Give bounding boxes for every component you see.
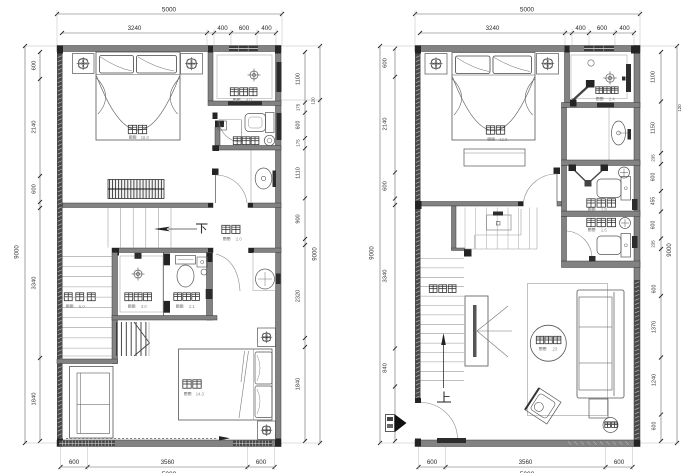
svg-text:600: 600 (69, 459, 80, 466)
svg-text:3560: 3560 (519, 459, 533, 466)
svg-text:400: 400 (217, 25, 228, 32)
svg-text:120: 120 (311, 97, 316, 105)
svg-text:400: 400 (619, 25, 630, 32)
svg-text:600: 600 (614, 459, 625, 466)
svg-text:600: 600 (256, 459, 267, 466)
svg-text:12.8: 12.8 (499, 137, 508, 142)
svg-text:1.8: 1.8 (601, 207, 607, 212)
svg-text:4.0: 4.0 (246, 97, 252, 102)
svg-text:1110: 1110 (296, 167, 302, 179)
svg-text:2140: 2140 (383, 118, 389, 131)
svg-text:1100: 1100 (651, 71, 657, 83)
svg-text:1100: 1100 (296, 73, 302, 85)
svg-text:175: 175 (296, 103, 301, 111)
svg-text:1240: 1240 (652, 374, 658, 386)
svg-text:2.4: 2.4 (609, 96, 615, 101)
svg-text:2.1: 2.1 (189, 304, 195, 309)
svg-text:235: 235 (651, 240, 656, 248)
svg-text:5000: 5000 (162, 7, 177, 14)
svg-text:600: 600 (652, 422, 658, 431)
svg-text:9000: 9000 (667, 243, 673, 257)
svg-text:2140: 2140 (32, 121, 38, 134)
svg-text:120: 120 (677, 104, 682, 112)
svg-text:600: 600 (383, 58, 389, 68)
svg-text:235: 235 (651, 154, 656, 162)
svg-text:3240: 3240 (128, 25, 142, 32)
svg-text:400: 400 (575, 25, 586, 32)
svg-text:9000: 9000 (370, 246, 376, 260)
svg-text:1150: 1150 (651, 122, 657, 134)
svg-text:1840: 1840 (296, 378, 302, 390)
svg-text:23: 23 (552, 346, 557, 351)
svg-text:600: 600 (597, 25, 608, 32)
svg-text:14.3: 14.3 (196, 391, 205, 396)
svg-text:16.0: 16.0 (141, 135, 150, 140)
svg-text:600: 600 (383, 181, 389, 191)
svg-text:1.6: 1.6 (601, 227, 607, 232)
svg-text:600: 600 (296, 121, 302, 130)
svg-text:9000: 9000 (15, 245, 21, 259)
svg-text:1370: 1370 (652, 321, 658, 333)
svg-text:600: 600 (239, 25, 250, 32)
svg-text:9000: 9000 (313, 247, 319, 261)
svg-text:3340: 3340 (32, 277, 38, 290)
svg-text:1840: 1840 (32, 393, 38, 406)
svg-text:5.0: 5.0 (79, 304, 85, 309)
svg-text:900: 900 (296, 214, 302, 223)
svg-text:2320: 2320 (296, 290, 302, 302)
svg-text:600: 600 (652, 285, 658, 294)
svg-text:3340: 3340 (383, 270, 389, 283)
svg-text:840: 840 (383, 363, 389, 373)
svg-text:600: 600 (427, 459, 438, 466)
svg-text:175: 175 (296, 139, 301, 147)
svg-text:400: 400 (261, 25, 272, 32)
svg-text:3560: 3560 (161, 459, 175, 466)
svg-text:600: 600 (651, 221, 657, 230)
svg-text:600: 600 (32, 61, 38, 71)
svg-text:3240: 3240 (486, 25, 500, 32)
svg-text:455: 455 (651, 197, 657, 206)
svg-text:5000: 5000 (520, 7, 535, 14)
svg-text:2.0: 2.0 (236, 236, 242, 241)
svg-text:600: 600 (32, 184, 38, 194)
svg-text:3.0: 3.0 (141, 304, 147, 309)
svg-text:600: 600 (651, 173, 657, 182)
